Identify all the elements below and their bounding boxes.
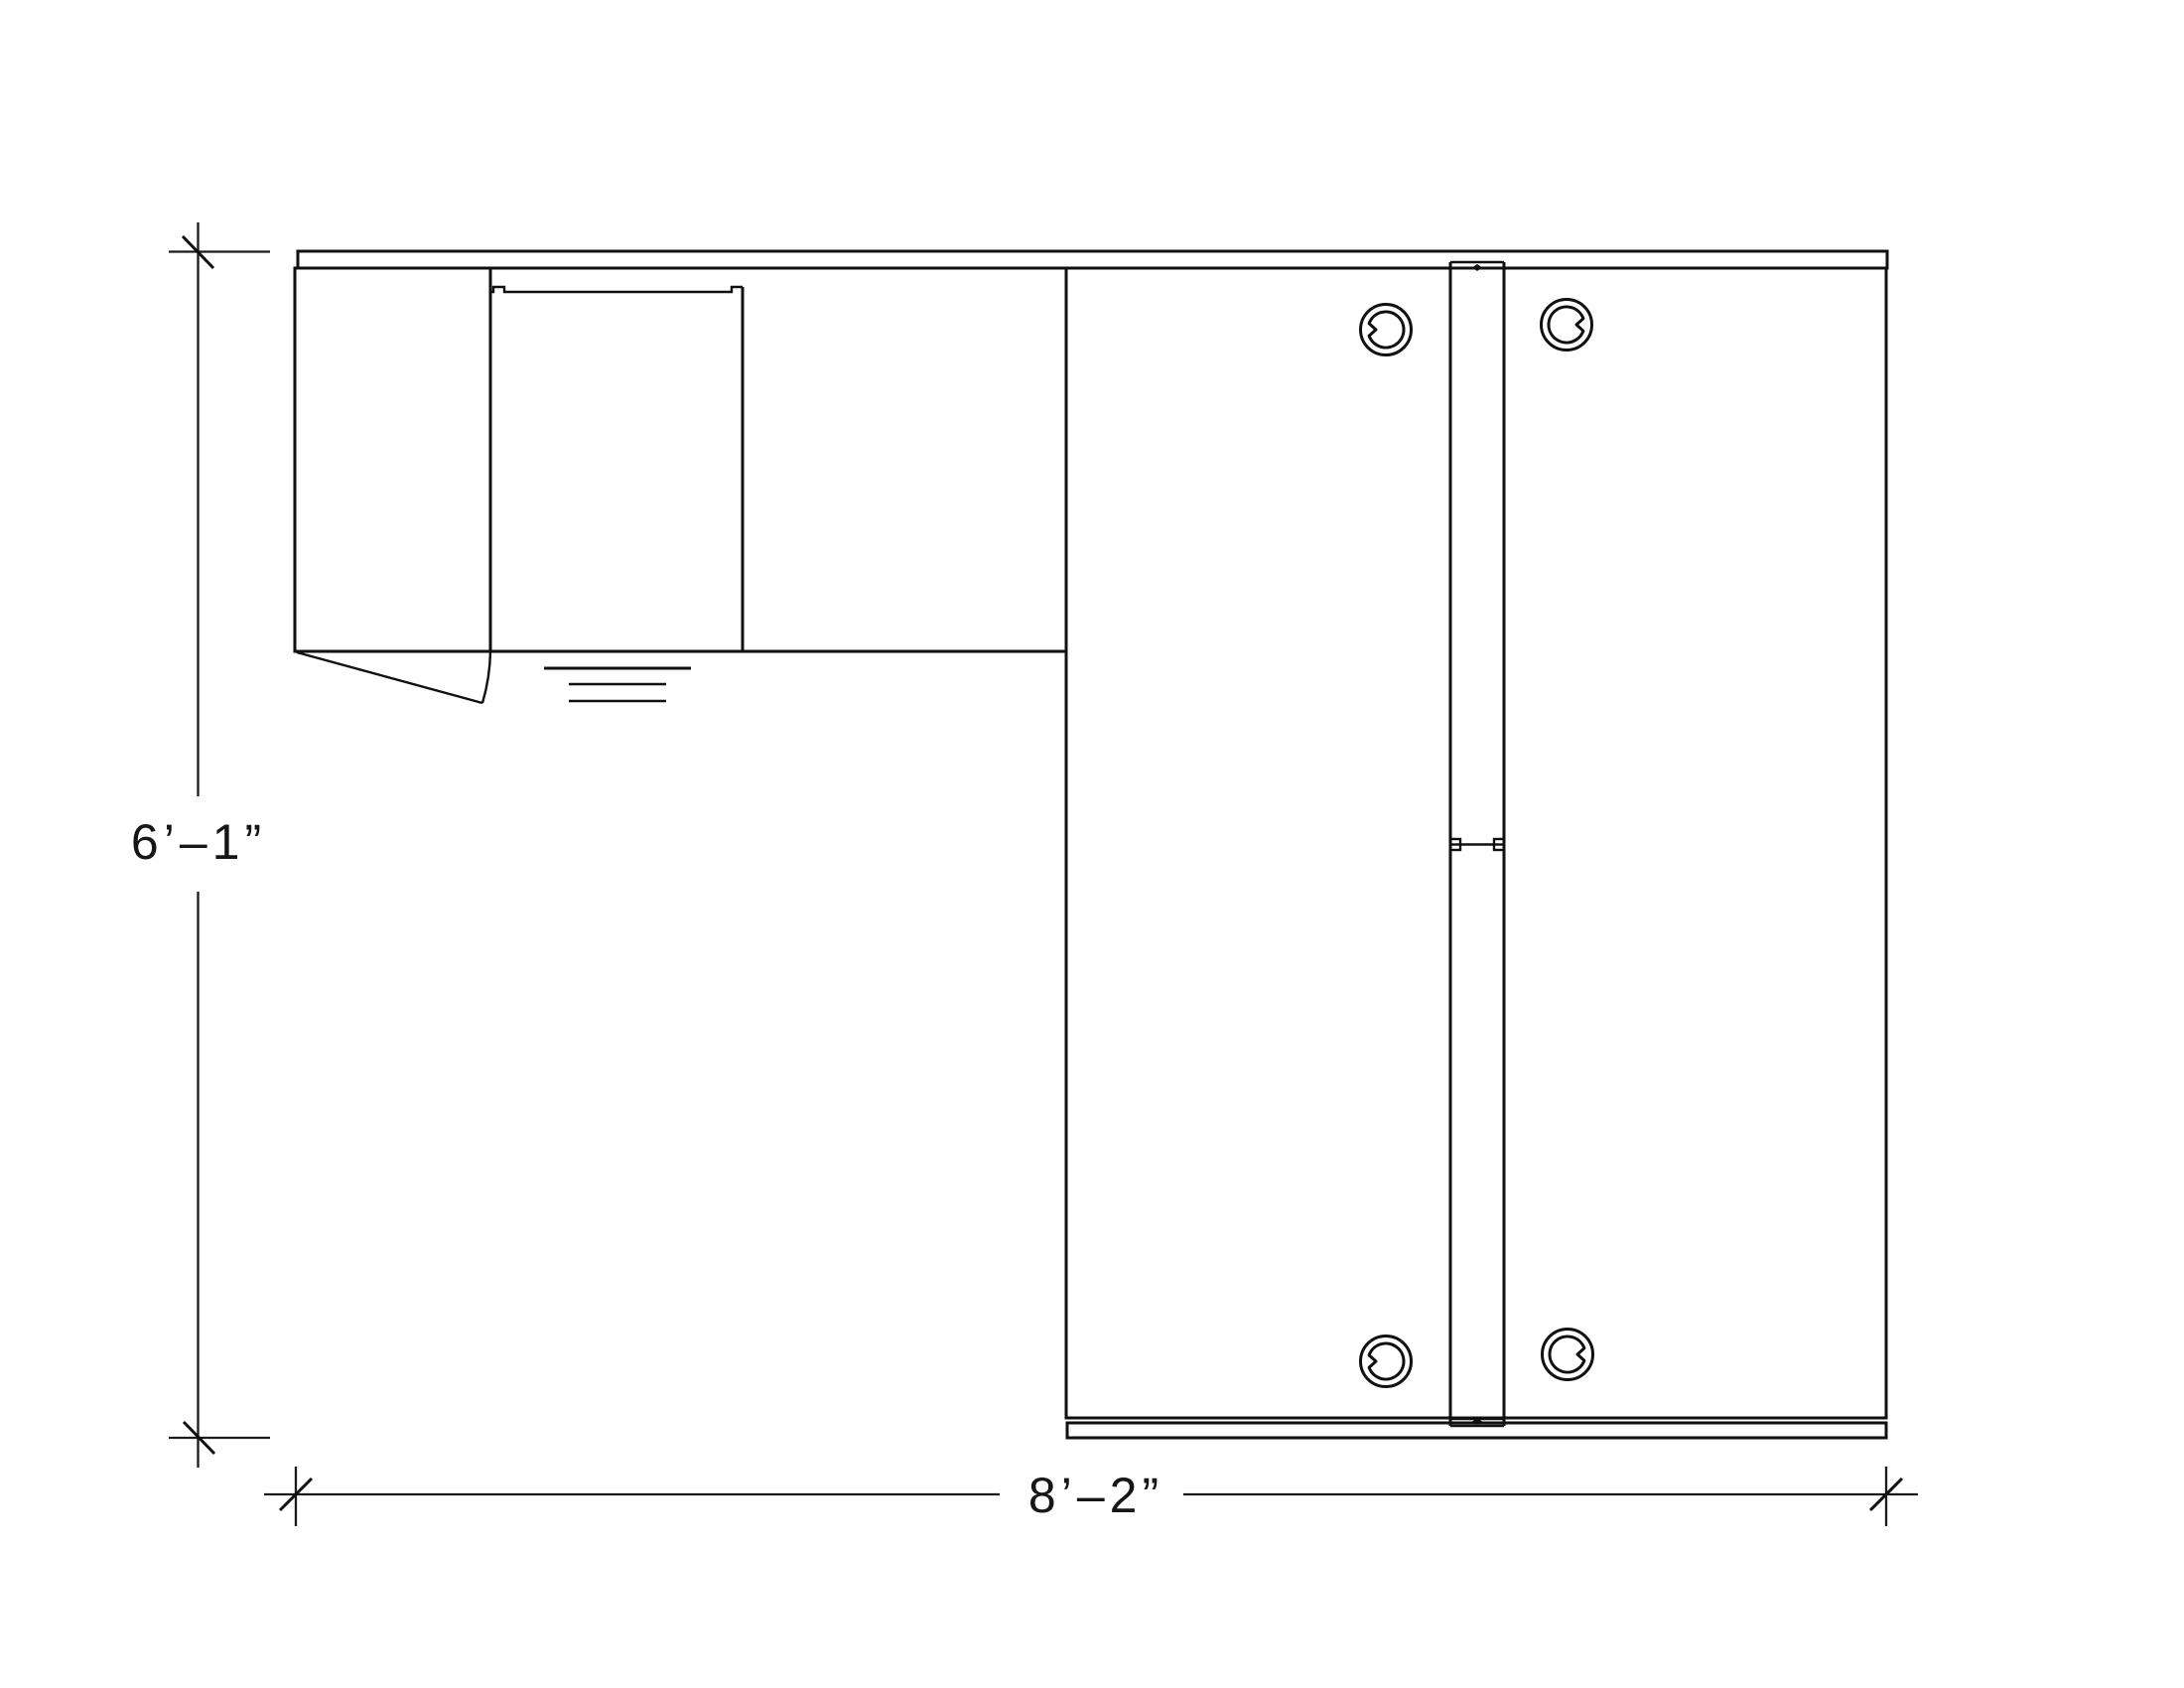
grommet-top-right-icon [1542, 300, 1592, 351]
right-worksurface-outline [1066, 268, 1886, 1418]
left-return-worksurface [295, 268, 1066, 651]
grommet-inner-notched-ring [1550, 1336, 1584, 1372]
grommet-bottom-right-icon [1543, 1330, 1593, 1380]
left-worksurface-outline [295, 268, 1066, 651]
millwork-plan-drawing: 6’–1” 8’–2” [0, 0, 2184, 1688]
right-worksurface [1066, 268, 1886, 1418]
grommet-top-left-icon [1361, 305, 1412, 355]
door-swing-arc-icon [482, 651, 490, 703]
height-dimension-label: 6’–1” [131, 814, 266, 870]
vent-hash-marks [544, 668, 691, 701]
divider-top-diamond-icon [1472, 264, 1482, 271]
grommet-bottom-left-icon [1361, 1336, 1412, 1387]
appliance-cabinet [490, 269, 743, 651]
grommet-inner-notched-ring [1369, 312, 1404, 348]
grommet-inner-notched-ring [1549, 307, 1583, 343]
top-edge-band-rect [298, 251, 1887, 268]
horizontal-dimension: 8’–2” [264, 1467, 1918, 1526]
center-divider-panel [1450, 262, 1504, 1426]
door-leaf-line [297, 652, 482, 703]
width-dimension-label: 8’–2” [1028, 1468, 1163, 1523]
cabinet-top-notched-line [490, 287, 743, 292]
grommet-inner-notched-ring [1369, 1343, 1404, 1379]
vertical-dimension: 6’–1” [131, 222, 270, 1468]
top-edge-band [298, 251, 1887, 268]
cabinet-door-swing [297, 651, 490, 703]
divider-mid-joint [1450, 839, 1504, 850]
